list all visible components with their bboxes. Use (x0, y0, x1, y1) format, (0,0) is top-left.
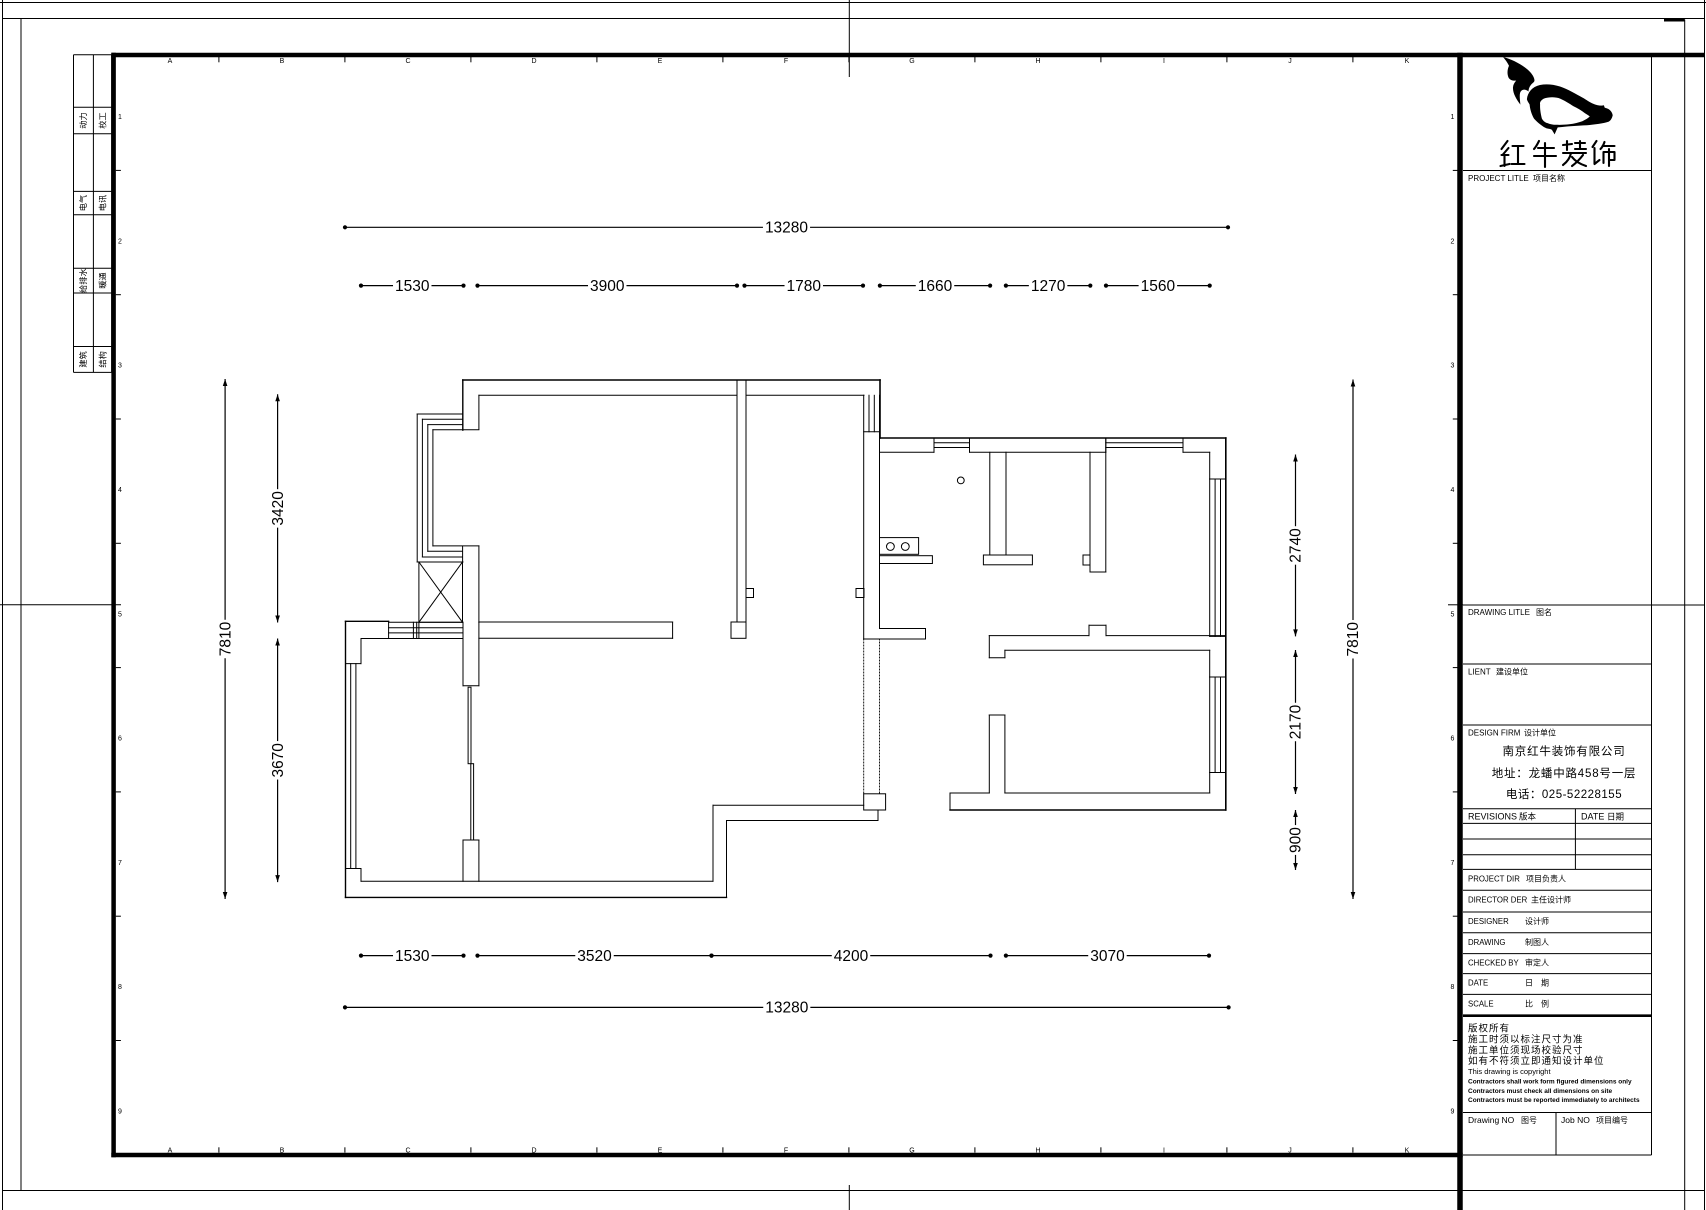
svg-text:项目负责人: 项目负责人 (1526, 873, 1566, 883)
svg-text:设计师: 设计师 (1525, 916, 1549, 926)
svg-text:电讯: 电讯 (98, 195, 108, 211)
svg-text:Job NO: Job NO (1561, 1115, 1590, 1125)
svg-text:I: I (1163, 1147, 1165, 1154)
svg-text:2740: 2740 (1288, 528, 1305, 563)
svg-text:施工单位须现场校验尺寸: 施工单位须现场校验尺寸 (1468, 1044, 1584, 1056)
svg-text:3520: 3520 (577, 948, 612, 965)
svg-text:项目名称: 项目名称 (1533, 173, 1565, 183)
svg-text:校工: 校工 (98, 112, 108, 128)
svg-text:G: G (909, 1147, 914, 1154)
svg-text:PROJECT DIR: PROJECT DIR (1468, 874, 1520, 883)
svg-text:结构: 结构 (98, 351, 108, 367)
svg-text:LIENT: LIENT (1468, 668, 1491, 677)
svg-text:版本: 版本 (1519, 812, 1537, 822)
svg-text:13280: 13280 (765, 1000, 808, 1017)
svg-text:DATE: DATE (1468, 979, 1488, 988)
svg-text:2: 2 (118, 238, 122, 245)
svg-text:9: 9 (118, 1109, 122, 1116)
svg-text:南京红牛装饰有限公司: 南京红牛装饰有限公司 (1503, 744, 1626, 758)
svg-text:3420: 3420 (270, 491, 287, 526)
svg-text:2: 2 (1451, 238, 1455, 245)
svg-text:图名: 图名 (1536, 607, 1552, 617)
svg-text:电话：025-52228155: 电话：025-52228155 (1506, 788, 1622, 801)
svg-text:B: B (280, 1147, 285, 1154)
svg-text:1: 1 (1451, 114, 1455, 121)
svg-text:版权所有: 版权所有 (1468, 1023, 1510, 1035)
svg-text:5: 5 (118, 611, 122, 618)
svg-text:C: C (405, 1147, 410, 1154)
svg-text:建筑: 建筑 (78, 351, 88, 367)
svg-text:7: 7 (118, 860, 122, 867)
svg-text:F: F (784, 1147, 788, 1154)
svg-text:建设单位: 建设单位 (1496, 667, 1528, 677)
svg-text:审定人: 审定人 (1525, 958, 1549, 968)
svg-text:1: 1 (118, 114, 122, 121)
svg-text:G: G (909, 58, 914, 65)
svg-text:REVISIONS: REVISIONS (1468, 812, 1517, 822)
svg-text:DIRECTOR DER: DIRECTOR DER (1468, 895, 1528, 904)
svg-text:6: 6 (1451, 736, 1455, 743)
svg-text:3070: 3070 (1090, 948, 1125, 965)
svg-text:制图人: 制图人 (1525, 937, 1549, 947)
svg-text:设计单位: 设计单位 (1524, 728, 1556, 738)
svg-text:900: 900 (1288, 827, 1305, 853)
svg-text:1530: 1530 (395, 948, 430, 965)
svg-text:日期: 日期 (1607, 812, 1624, 822)
svg-text:施工时须以标注尺寸为准: 施工时须以标注尺寸为准 (1468, 1033, 1584, 1045)
svg-text:地址：龙蟠中路458号一层: 地址：龙蟠中路458号一层 (1492, 766, 1637, 780)
svg-text:电气: 电气 (78, 195, 88, 211)
svg-text:7810: 7810 (1345, 622, 1362, 657)
svg-text:13280: 13280 (765, 220, 808, 237)
svg-text:动力: 动力 (78, 112, 88, 128)
svg-text:3: 3 (1451, 363, 1455, 370)
svg-text:2170: 2170 (1288, 704, 1305, 739)
svg-text:DATE: DATE (1581, 812, 1604, 822)
svg-text:E: E (658, 58, 663, 65)
svg-text:7810: 7810 (217, 621, 234, 656)
svg-text:主任设计师: 主任设计师 (1531, 894, 1571, 904)
svg-text:3900: 3900 (590, 278, 625, 295)
svg-text:J: J (1288, 1147, 1292, 1154)
svg-text:3: 3 (118, 363, 122, 370)
svg-text:日 期: 日 期 (1525, 979, 1549, 988)
svg-text:D: D (531, 58, 536, 65)
svg-text:8: 8 (1451, 984, 1455, 991)
svg-text:图号: 图号 (1521, 1116, 1537, 1125)
svg-text:给排水: 给排水 (78, 268, 88, 293)
svg-text:1560: 1560 (1141, 278, 1176, 295)
svg-text:1780: 1780 (787, 278, 822, 295)
svg-text:5: 5 (1451, 611, 1455, 618)
svg-text:This drawing is copyright: This drawing is copyright (1468, 1067, 1551, 1076)
svg-text:K: K (1405, 58, 1410, 65)
svg-text:DRAWING LITLE: DRAWING LITLE (1468, 608, 1530, 617)
svg-text:K: K (1405, 1147, 1410, 1154)
svg-text:D: D (531, 1147, 536, 1154)
svg-text:1530: 1530 (395, 278, 430, 295)
svg-text:H: H (1035, 1147, 1040, 1154)
svg-text:6: 6 (118, 736, 122, 743)
svg-text:Contractors must check all dim: Contractors must check all dimensions on… (1468, 1088, 1613, 1095)
svg-text:Contractors must be reported i: Contractors must be reported immediately… (1468, 1097, 1640, 1104)
svg-text:A: A (168, 58, 173, 65)
svg-text:B: B (280, 58, 285, 65)
svg-text:Drawing NO: Drawing NO (1468, 1115, 1515, 1125)
svg-text:I: I (1163, 58, 1165, 65)
svg-text:A: A (168, 1147, 173, 1154)
svg-text:Contractors shall work form fi: Contractors shall work form figured dime… (1468, 1078, 1632, 1085)
svg-text:H: H (1035, 58, 1040, 65)
svg-text:暖通: 暖通 (98, 272, 108, 288)
svg-text:E: E (658, 1147, 663, 1154)
svg-text:PROJECT LITLE: PROJECT LITLE (1468, 174, 1529, 183)
svg-text:3670: 3670 (270, 743, 287, 778)
svg-text:4: 4 (118, 487, 122, 494)
svg-text:SCALE: SCALE (1468, 999, 1494, 1008)
svg-text:J: J (1288, 58, 1292, 65)
svg-text:DESIGN FIRM: DESIGN FIRM (1468, 729, 1521, 738)
svg-text:CHECKED BY: CHECKED BY (1468, 959, 1519, 968)
svg-text:如有不符须立即通知设计单位: 如有不符须立即通知设计单位 (1468, 1055, 1605, 1067)
svg-text:1270: 1270 (1031, 278, 1066, 295)
svg-text:项目编号: 项目编号 (1596, 1115, 1628, 1125)
svg-text:DESIGNER: DESIGNER (1468, 917, 1509, 926)
svg-text:4: 4 (1451, 487, 1455, 494)
svg-text:比 例: 比 例 (1525, 998, 1549, 1008)
svg-text:F: F (784, 58, 788, 65)
svg-text:C: C (405, 58, 410, 65)
svg-text:4200: 4200 (834, 948, 869, 965)
svg-text:8: 8 (118, 984, 122, 991)
svg-text:DRAWING: DRAWING (1468, 938, 1505, 947)
svg-text:1660: 1660 (918, 278, 953, 295)
svg-text:7: 7 (1451, 860, 1455, 867)
svg-text:9: 9 (1451, 1109, 1455, 1116)
